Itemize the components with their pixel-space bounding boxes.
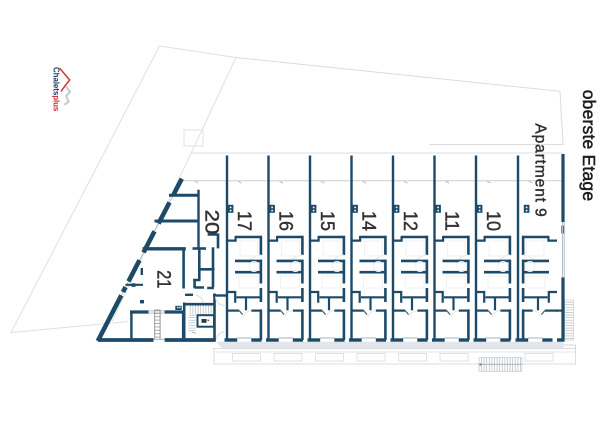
- svg-text:16: 16: [275, 211, 296, 231]
- svg-text:21: 21: [153, 270, 174, 288]
- svg-text:15: 15: [316, 211, 337, 231]
- svg-text:12: 12: [399, 211, 420, 231]
- svg-text:20: 20: [201, 210, 222, 235]
- svg-text:10: 10: [482, 211, 503, 231]
- svg-text:11: 11: [441, 211, 462, 231]
- svg-text:oberste Etage: oberste Etage: [579, 90, 599, 202]
- svg-text:Apartment 9: Apartment 9: [532, 123, 549, 217]
- svg-text:17: 17: [233, 211, 254, 231]
- svg-text:14: 14: [358, 211, 379, 231]
- svg-text:Chaletsplus: Chaletsplus: [52, 67, 61, 112]
